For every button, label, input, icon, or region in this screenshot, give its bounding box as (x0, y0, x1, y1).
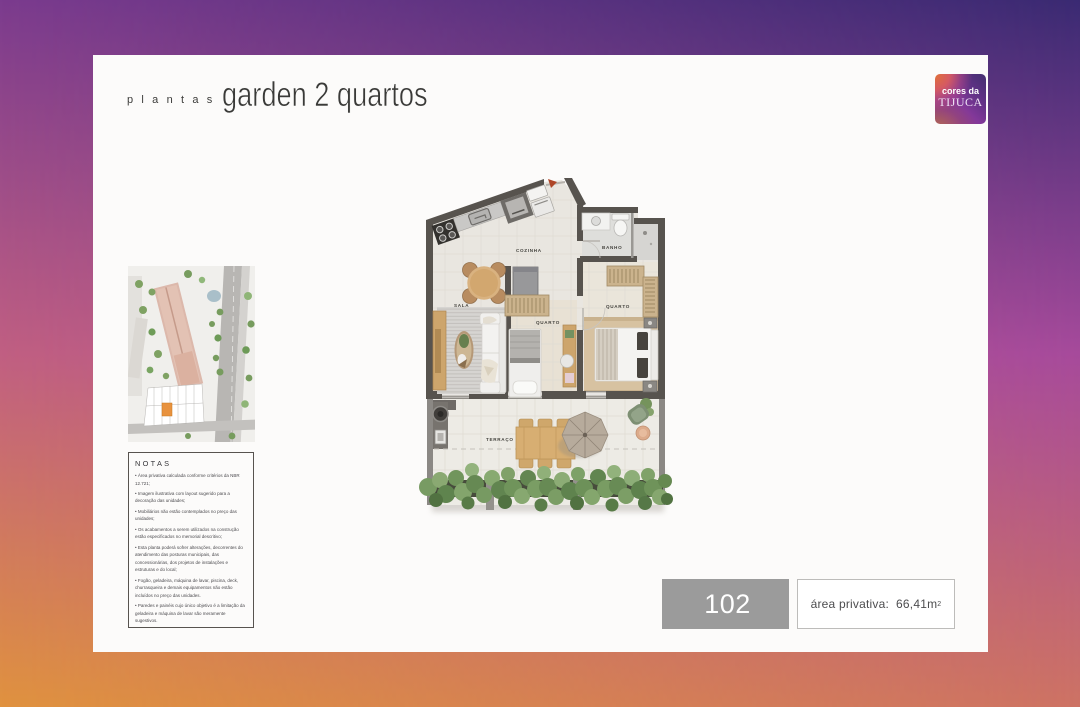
svg-text:COZINHA: COZINHA (516, 248, 542, 253)
svg-text:SALA: SALA (454, 303, 469, 308)
svg-text:TERRAÇO: TERRAÇO (486, 437, 514, 442)
svg-text:BANHO: BANHO (602, 245, 622, 250)
svg-text:QUARTO: QUARTO (536, 320, 560, 325)
svg-text:QUARTO: QUARTO (606, 304, 630, 309)
